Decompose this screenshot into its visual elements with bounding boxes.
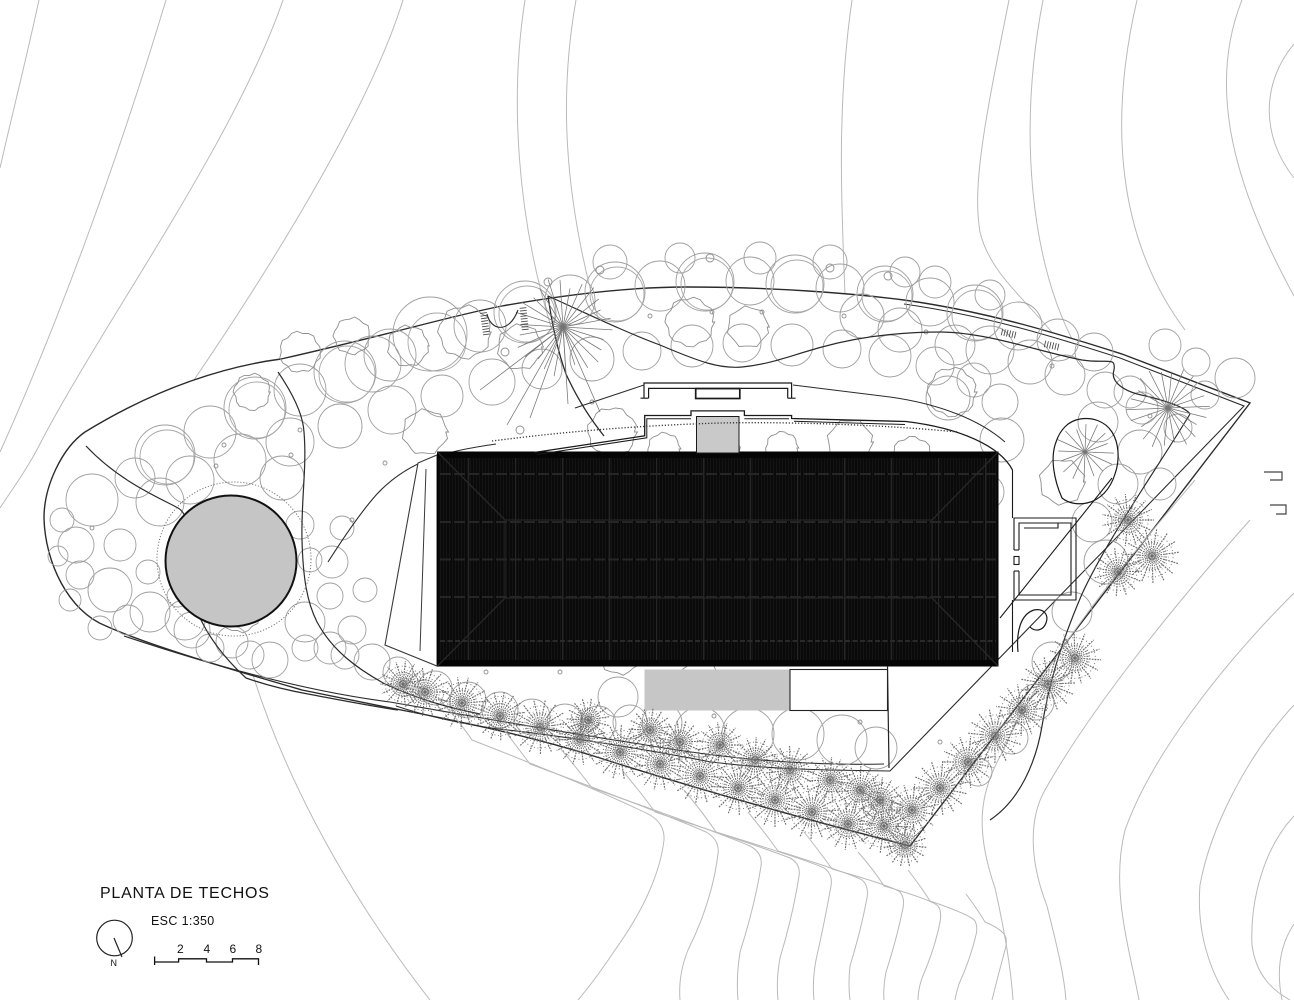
svg-text:6: 6	[230, 942, 237, 956]
svg-text:2: 2	[177, 942, 184, 956]
svg-text:PLANTA DE TECHOS: PLANTA DE TECHOS	[100, 885, 270, 902]
svg-text:8: 8	[256, 942, 263, 956]
svg-text:N: N	[111, 958, 118, 968]
svg-text:4: 4	[204, 942, 211, 956]
svg-text:ESC 1:350: ESC 1:350	[151, 914, 215, 928]
